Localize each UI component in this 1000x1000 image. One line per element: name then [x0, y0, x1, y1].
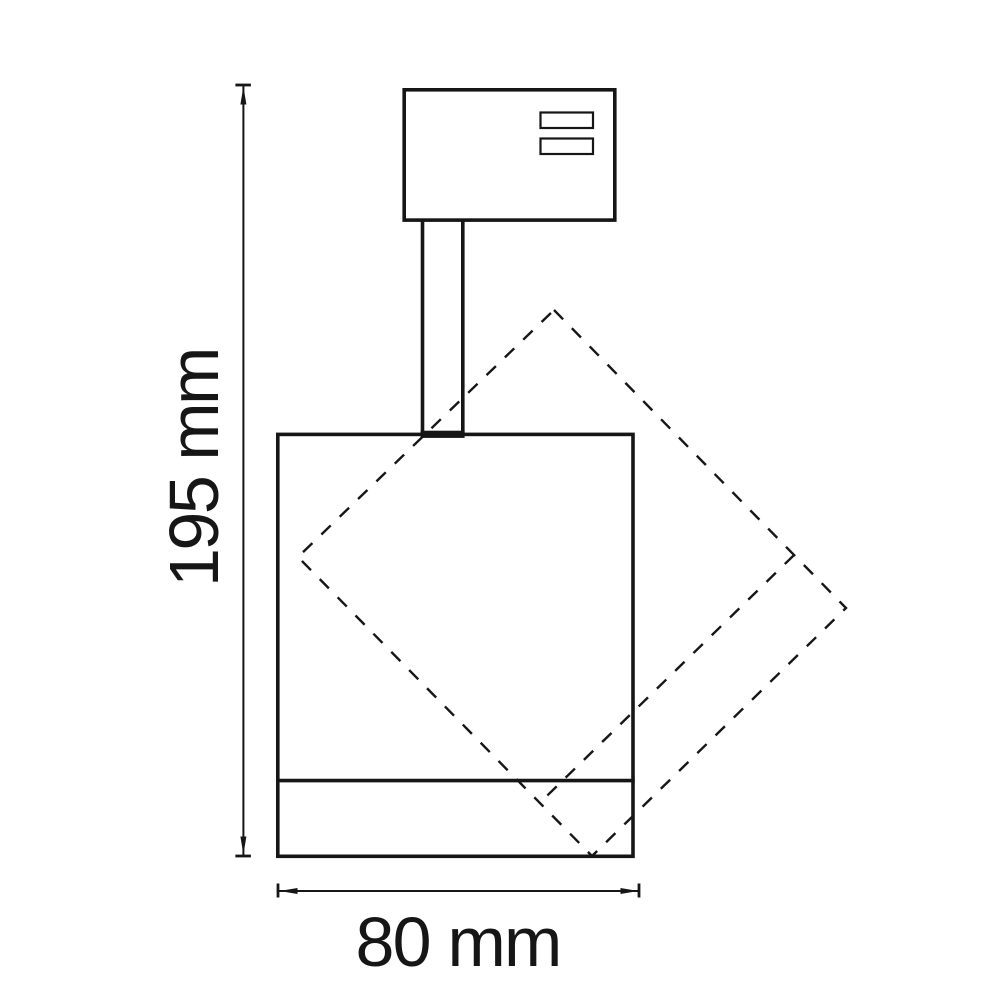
svg-text:80 mm: 80 mm: [356, 903, 561, 981]
svg-text:195 mm: 195 mm: [155, 349, 233, 587]
